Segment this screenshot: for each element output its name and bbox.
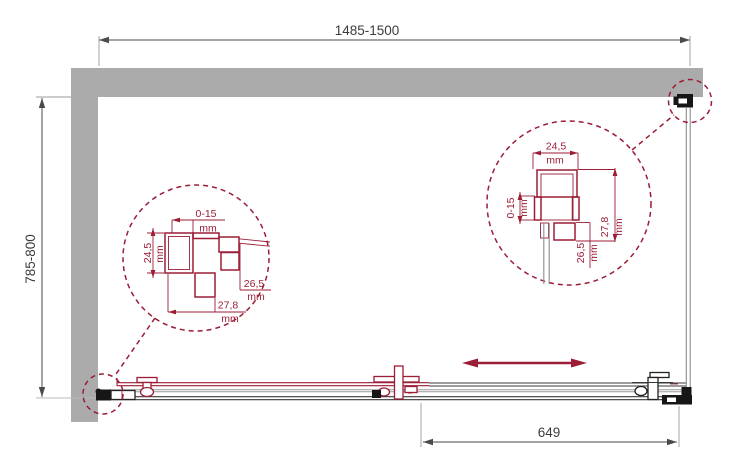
detail-right-dim-3-value: 26,5 — [575, 243, 587, 264]
detail-left-dim-1-unit: mm — [154, 245, 166, 263]
roller-cap — [137, 378, 157, 383]
detail-right-dim-2-unit: mm — [613, 218, 625, 236]
detail-right-dim-0-unit: mm — [546, 155, 564, 167]
profile-main — [165, 233, 193, 273]
wall-top — [71, 68, 703, 97]
plan-svg: 1485-1500 785-800 — [0, 0, 750, 473]
detail-left-dim-3-value: 27,8 — [218, 300, 239, 312]
detail-right-dim-3-unit: mm — [588, 244, 600, 262]
enclosure-plan-drawing: 1485-1500 785-800 — [0, 0, 750, 473]
roller-wheel — [635, 387, 647, 396]
profile-clamp — [541, 223, 549, 238]
carriage-block — [372, 390, 381, 398]
roller-stem — [648, 378, 658, 400]
glass-panel-right — [686, 108, 690, 396]
profile-box-b — [221, 253, 239, 271]
depth-dimension-label: 785-800 — [23, 234, 38, 284]
arrow-head-left — [462, 359, 478, 368]
detail-left-dim-3-unit: mm — [221, 313, 239, 325]
detail-left-dim-1-value: 24,5 — [142, 243, 154, 264]
detail-left-dim-2-value: 26,5 — [244, 278, 265, 290]
profile-leg-left — [535, 197, 542, 220]
detail-left-dim-2-unit: mm — [247, 291, 265, 303]
detail-left-dim-0-unit: mm — [199, 223, 217, 235]
profile-channel — [195, 273, 215, 297]
wall-bracket-left — [96, 389, 136, 401]
callout-leader-right — [632, 115, 674, 150]
bracket-knob — [96, 389, 102, 395]
profile-glass-bottom — [239, 243, 270, 246]
arrow-head-right — [571, 359, 587, 368]
callout-leader-left — [114, 318, 155, 377]
panel-width-dimension: 649 — [421, 403, 679, 447]
detail-right-dim-1-value: 0-15 — [505, 197, 517, 218]
carriage-clamp — [405, 387, 417, 393]
roller-left — [137, 378, 157, 397]
fitting-post — [682, 387, 692, 404]
panel-width-label: 649 — [538, 425, 561, 440]
roller-cap — [650, 373, 669, 378]
fitting-notch — [667, 398, 676, 403]
roller-wheel — [141, 388, 154, 397]
detail-right-dim-0-value: 24,5 — [546, 141, 567, 153]
width-dimension-label: 1485-1500 — [335, 23, 400, 38]
detail-right-dim-2-value: 27,8 — [599, 217, 611, 238]
profile-glass-top — [239, 239, 270, 242]
profile-box-a — [219, 237, 239, 252]
roller-center — [372, 366, 419, 399]
wall-left — [71, 68, 98, 422]
profile-box — [554, 223, 575, 240]
bracket-tab — [674, 97, 679, 106]
width-dimension: 1485-1500 — [99, 23, 690, 66]
carriage-plate — [395, 366, 404, 399]
detail-profile-right: 24,5 mm 0-15 mm 27,8 mm 26,5 mm — [505, 141, 625, 285]
detail-left-dim-0-value: 0-15 — [195, 208, 216, 220]
slide-direction-arrow-icon — [462, 359, 587, 368]
profile-main-inner — [169, 237, 190, 270]
detail-right-dim-1-unit: mm — [518, 199, 530, 217]
detail-profile-left: 0-15 mm 24,5 mm 26,5 mm 27,8 mm — [142, 208, 271, 325]
profile-leg-right — [573, 197, 580, 220]
